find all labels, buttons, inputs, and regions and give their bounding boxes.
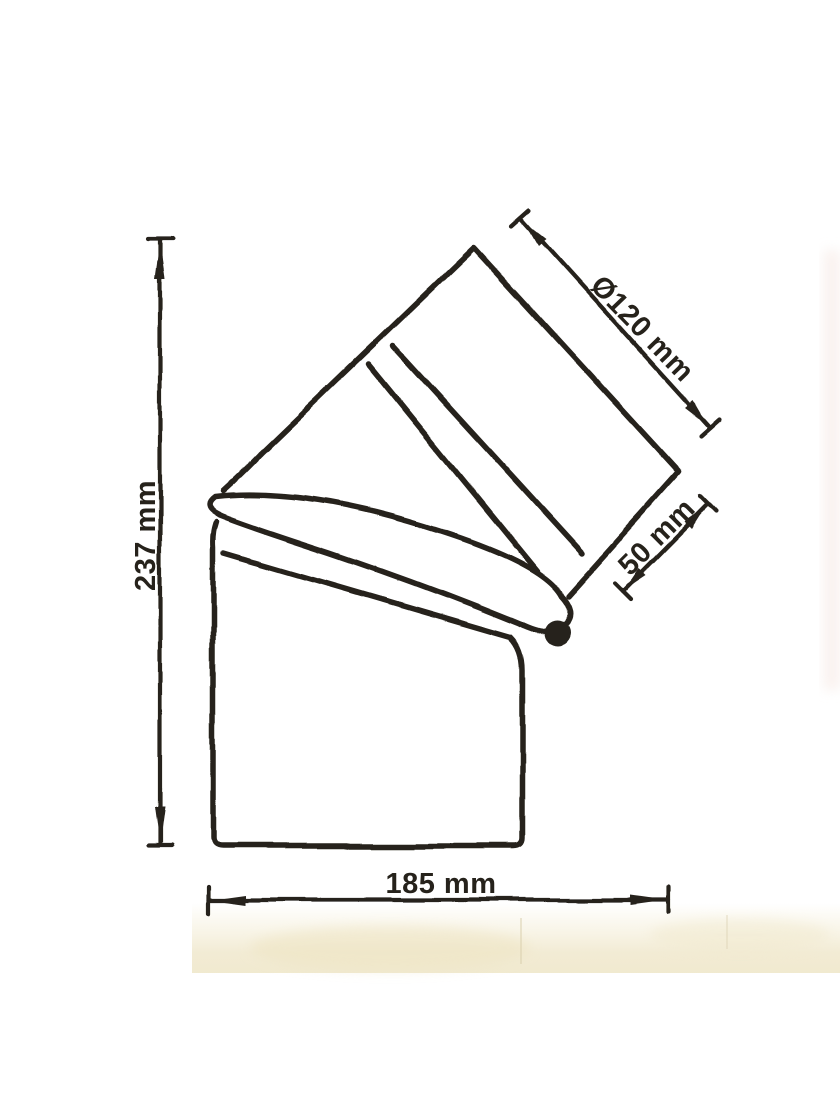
- height-arrow-down: [155, 806, 165, 842]
- height-dimension-label: 237 mm: [130, 480, 162, 591]
- stain-blot-right: [650, 919, 830, 951]
- joint-rivet: [544, 621, 570, 647]
- crease-mark: [520, 918, 522, 964]
- swivel-joint: [209, 495, 570, 647]
- offset-dimension-label: 50 mm: [612, 493, 701, 582]
- stain-blot: [250, 926, 530, 970]
- paper-stains: [192, 250, 840, 973]
- upper-pipe-crimp-line-1: [368, 364, 537, 571]
- scanned-page: 237 mm 185 mm Ø120 mm 50 mm: [0, 0, 840, 1120]
- elbow-technical-drawing: 237 mm 185 mm Ø120 mm 50 mm: [0, 0, 840, 1120]
- lower-pipe: [213, 522, 523, 846]
- lower-pipe-outline: [213, 522, 523, 846]
- upper-pipe-collar-cap: [222, 454, 260, 491]
- height-arrow-up: [155, 242, 165, 278]
- upper-pipe-crimp-line-2: [393, 346, 582, 553]
- right-edge-tint: [824, 250, 840, 690]
- diameter-dimension-label: Ø120 mm: [584, 270, 700, 389]
- width-dimension-label: 185 mm: [385, 868, 496, 900]
- crease-mark-2: [726, 915, 728, 949]
